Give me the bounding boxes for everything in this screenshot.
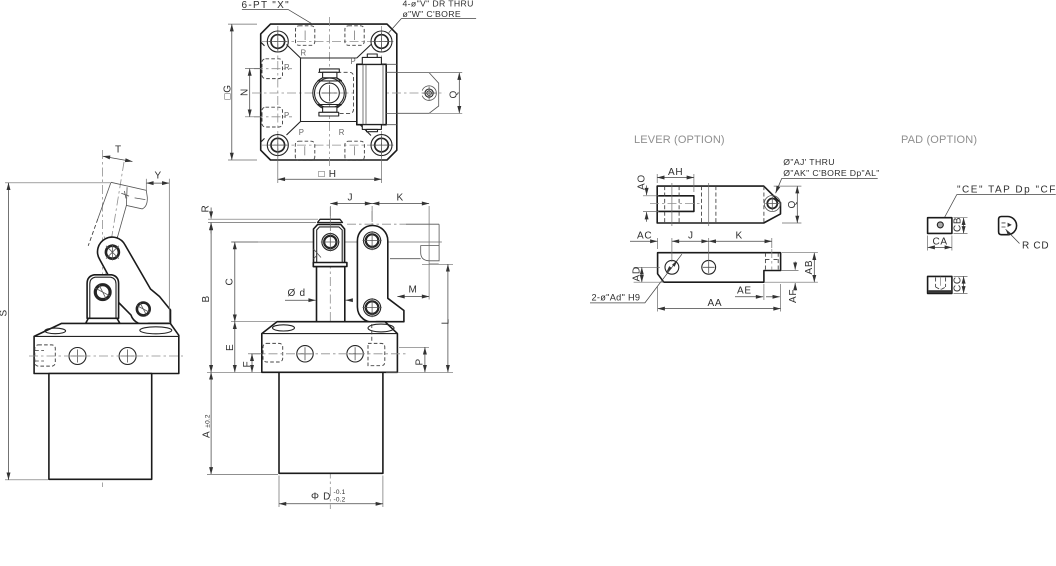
svg-text:R: R: [284, 63, 290, 72]
svg-text:T: T: [115, 145, 122, 156]
svg-text:AE: AE: [737, 286, 752, 297]
svg-text:Q: Q: [787, 200, 798, 208]
svg-text:L: L: [440, 318, 451, 324]
svg-text:A ±0.2: A ±0.2: [202, 414, 213, 438]
svg-text:R CD: R CD: [1022, 241, 1049, 252]
svg-text:ø"W" C'BORE: ø"W" C'BORE: [403, 9, 462, 19]
svg-text:CC: CC: [952, 276, 963, 292]
svg-text:□G: □G: [223, 84, 234, 99]
svg-text:CB: CB: [952, 217, 963, 232]
svg-text:Φ D: Φ D: [311, 492, 331, 503]
svg-text:AO: AO: [637, 174, 648, 190]
svg-text:C: C: [225, 278, 236, 286]
svg-text:E: E: [225, 344, 236, 351]
svg-text:P: P: [351, 57, 357, 66]
svg-text:"CE" TAP Dp "CF": "CE" TAP Dp "CF": [957, 185, 1056, 196]
svg-text:-0.2: -0.2: [334, 497, 346, 504]
svg-text:P: P: [415, 358, 426, 365]
svg-text:AF: AF: [788, 289, 799, 303]
svg-text:4-ø"V" DR THRU: 4-ø"V" DR THRU: [403, 0, 474, 9]
svg-text:6-PT "X": 6-PT "X": [242, 0, 290, 11]
svg-text:-0.1: -0.1: [334, 489, 346, 496]
svg-text:2-ø"Ad" H9: 2-ø"Ad" H9: [592, 293, 641, 303]
svg-text:AD: AD: [632, 266, 643, 281]
svg-text:K: K: [736, 231, 743, 242]
svg-text:J: J: [348, 193, 354, 204]
svg-text:P: P: [299, 128, 305, 137]
svg-text:CA: CA: [933, 237, 948, 248]
svg-text:PAD (OPTION): PAD (OPTION): [901, 134, 977, 146]
svg-text:Ø d: Ø d: [288, 288, 306, 299]
svg-text:P: P: [284, 111, 290, 120]
svg-text:R: R: [201, 205, 212, 213]
svg-text:M: M: [409, 285, 418, 296]
svg-text:Y: Y: [155, 171, 162, 182]
svg-text:R: R: [339, 128, 345, 137]
svg-text:Ø"AJ' THRU: Ø"AJ' THRU: [783, 157, 835, 167]
svg-text:AC: AC: [637, 231, 652, 242]
svg-text:R: R: [301, 49, 307, 58]
svg-text:AH: AH: [668, 167, 683, 178]
svg-text:S: S: [0, 309, 10, 316]
svg-text:LEVER (OPTION): LEVER (OPTION): [634, 134, 725, 146]
svg-text:F: F: [242, 361, 253, 368]
svg-text:Q: Q: [449, 90, 460, 98]
svg-text:Ø"AK" C'BORE Dp"AL": Ø"AK" C'BORE Dp"AL": [783, 168, 879, 178]
svg-text:B: B: [201, 295, 212, 302]
svg-text:J: J: [688, 231, 694, 242]
svg-text:AA: AA: [708, 298, 723, 309]
svg-text:AB: AB: [804, 260, 815, 275]
svg-text:K: K: [397, 193, 404, 204]
svg-text:N: N: [239, 88, 250, 96]
svg-text:□ H: □ H: [319, 169, 337, 180]
